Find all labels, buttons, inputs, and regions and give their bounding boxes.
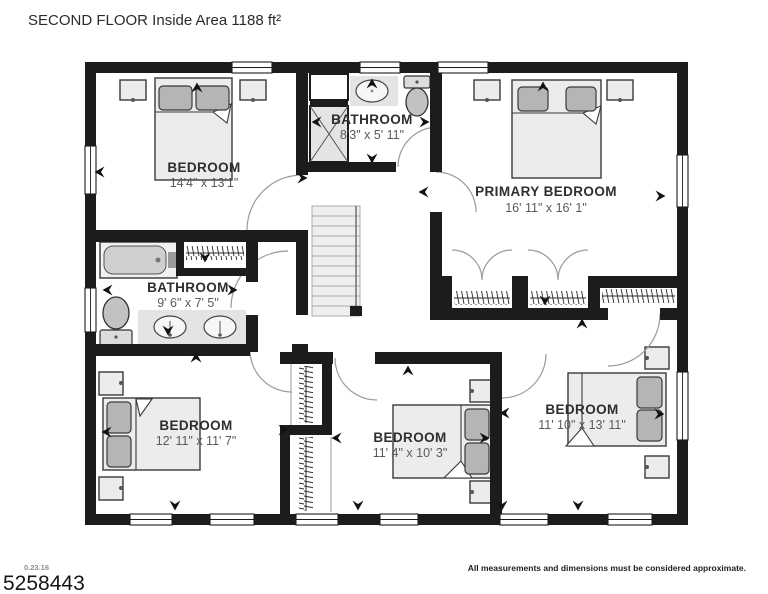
room-name: BEDROOM — [159, 418, 232, 433]
toilet-icon — [100, 297, 132, 345]
floor-plan-page: SECOND FLOOR Inside Area 1188 ft² — [0, 0, 768, 594]
footer-listing-id: 5258443 — [3, 572, 85, 594]
room-name: BEDROOM — [167, 160, 240, 175]
room-dims: 16' 11" x 16' 1" — [505, 201, 587, 215]
room-label-bathroom-mid: BATHROOM 9' 6" x 7' 5" — [147, 280, 229, 310]
vanity — [138, 310, 246, 344]
room-dims: 8'3" x 5' 11" — [340, 128, 404, 142]
room-dims: 9' 6" x 7' 5" — [157, 296, 219, 310]
room-dims: 12' 11" x 11' 7" — [156, 434, 237, 448]
floor-plan-canvas: SECOND FLOOR Inside Area 1188 ft² — [0, 0, 768, 594]
room-name: BEDROOM — [545, 402, 618, 417]
room-name: PRIMARY BEDROOM — [475, 184, 617, 199]
footer-disclaimer: All measurements and dimensions must be … — [468, 563, 746, 573]
room-dims: 11' 4" x 10' 3" — [373, 446, 448, 460]
room-dims: 14'4" x 13'1" — [170, 176, 239, 190]
room-name: BEDROOM — [373, 430, 446, 445]
room-dims: 11' 10" x 13' 11" — [538, 418, 626, 432]
footer-date-code: 0.23.16 — [24, 563, 49, 572]
room-name: BATHROOM — [147, 280, 229, 295]
bed — [512, 80, 601, 178]
bathtub-icon — [100, 242, 177, 278]
room-label-primary-bedroom: PRIMARY BEDROOM 16' 11" x 16' 1" — [475, 184, 617, 215]
room-name: BATHROOM — [331, 112, 413, 127]
staircase — [312, 206, 360, 316]
linen-closet — [310, 74, 348, 100]
page-title: SECOND FLOOR Inside Area 1188 ft² — [28, 12, 281, 29]
